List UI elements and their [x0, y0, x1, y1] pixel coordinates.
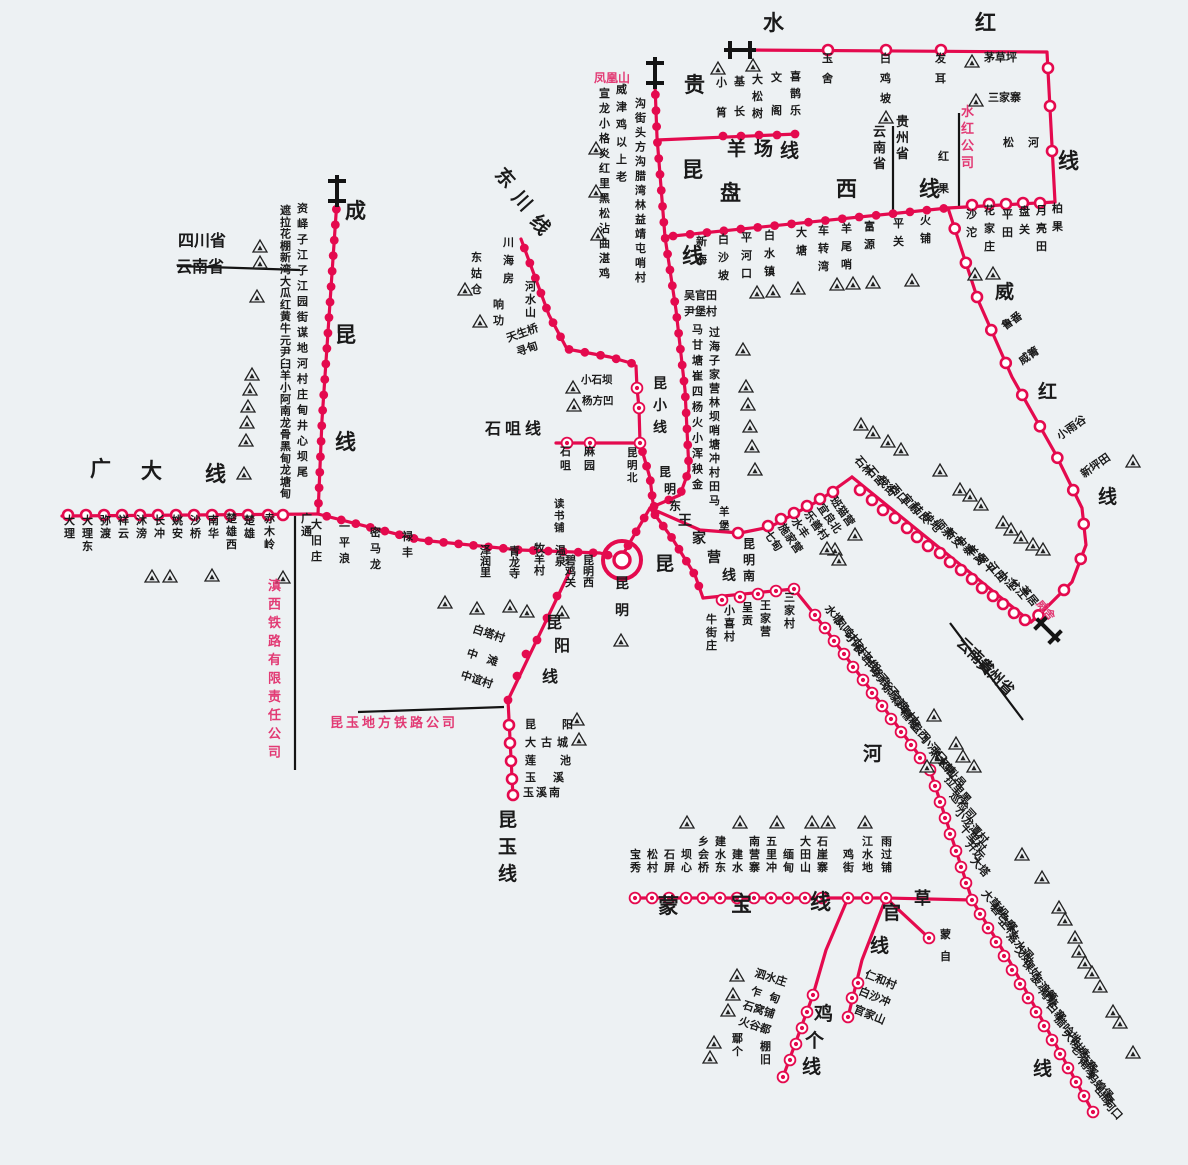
station-dot-core	[939, 204, 948, 213]
map-label-char: 丰	[402, 545, 413, 559]
station-dot-core	[950, 224, 960, 234]
map-label-char: 咀	[560, 459, 571, 472]
station-dot-core	[544, 547, 553, 556]
station-dot-core	[454, 539, 463, 548]
station-dot	[733, 528, 743, 538]
map-label-char: 宝	[630, 847, 641, 861]
map-label-char: 姑	[471, 266, 482, 280]
station-dot	[967, 574, 977, 584]
station-dot	[1063, 1063, 1074, 1074]
map-label-char: 街	[842, 860, 854, 874]
station-dot-core	[677, 487, 686, 496]
map-label-char: 宣	[599, 86, 610, 100]
station-dot-core	[773, 131, 782, 140]
map-label-char: 南	[743, 568, 755, 583]
map-label-char: 鹊	[790, 86, 801, 100]
map-label-char: 红	[961, 121, 974, 137]
map-label-char: 坡	[880, 91, 892, 105]
map-label-char: 雄	[243, 526, 255, 540]
map-label-char: 村	[709, 465, 720, 479]
station-dot	[896, 727, 907, 738]
map-label-char: 大	[82, 513, 93, 527]
station-dot-core	[861, 678, 865, 682]
map-label: 线	[542, 667, 558, 686]
map-label-char: 哨	[841, 257, 852, 271]
station-dot-core	[553, 592, 562, 601]
station-dot-core	[329, 251, 338, 260]
station-dot	[656, 170, 665, 179]
map-label-char: 新	[696, 234, 707, 248]
map-label: 个	[804, 1030, 825, 1052]
map-label-char: 峄	[297, 218, 309, 231]
map-label-char: 石	[559, 445, 571, 458]
station-dot-core	[788, 1058, 792, 1062]
map-label: 石咀线	[484, 419, 545, 438]
station-dot-core	[1074, 1080, 1078, 1084]
station-dot-core	[781, 1075, 785, 1079]
map-label: 羊尾哨	[840, 221, 852, 271]
station-dot-core	[791, 130, 800, 139]
station-dot-core	[890, 513, 900, 523]
station-dot-core	[918, 756, 922, 760]
station-dot-core	[684, 896, 688, 900]
station-dot-core	[878, 505, 888, 515]
station-dot-core	[580, 348, 589, 357]
map-label-char: 里	[766, 848, 777, 861]
map-label: 昆	[655, 553, 674, 575]
map-label: 读书铺	[554, 497, 565, 534]
station-dot	[991, 937, 1002, 948]
station-dot-core	[1001, 358, 1011, 368]
map-label-char: 理	[82, 527, 93, 540]
station-dot-core	[832, 639, 836, 643]
map-label-char: 威	[616, 82, 627, 96]
map-label-char: 司	[268, 746, 281, 761]
station-dot	[1047, 1035, 1058, 1046]
station-dot-core	[672, 313, 681, 322]
station-dot	[666, 265, 675, 274]
station-dot-core	[855, 213, 864, 222]
station-dot-core	[328, 267, 337, 276]
station-dot-core	[513, 672, 522, 681]
station-dot	[890, 513, 900, 523]
map-label-char: 林	[635, 198, 646, 212]
map-label-char: 湾	[818, 259, 829, 273]
map-label-char: 靖	[635, 227, 646, 241]
station-dot	[565, 345, 574, 354]
station-dot-core	[556, 332, 565, 341]
map-label: 莲池	[525, 753, 595, 767]
map-label: 昆	[682, 158, 703, 182]
map-label-char: 津	[616, 100, 627, 114]
station-dot-core	[689, 569, 698, 578]
station-dot	[867, 688, 878, 699]
map-label-char: 大	[800, 834, 811, 848]
station-dot	[612, 354, 621, 363]
station-dot	[278, 510, 288, 520]
station-dot-core	[823, 626, 827, 630]
map-label-char: 东	[669, 498, 681, 513]
map-label-char: 村	[635, 270, 646, 284]
station-dot	[672, 313, 681, 322]
map-label: 线	[780, 139, 799, 162]
station-dot	[689, 569, 698, 578]
map-label-char: 哨	[635, 256, 646, 270]
map-label-char: 岭	[264, 537, 275, 551]
station-dot	[675, 545, 684, 554]
map-label: 牧羊村	[534, 541, 546, 577]
station-dot	[930, 781, 941, 792]
map-label-char: 海	[503, 253, 514, 267]
station-dot-core	[948, 832, 952, 836]
map-label-char: 华	[208, 526, 219, 540]
station-dot-core	[1076, 554, 1086, 564]
map-label-char: 沙	[966, 208, 977, 221]
station-dot-core	[954, 849, 958, 853]
map-label-char: 坝	[297, 449, 308, 463]
map-label: 石屏	[663, 848, 675, 874]
station-dot-core	[315, 483, 324, 492]
map-label-char: 一	[339, 520, 350, 533]
map-label-char: 西	[268, 598, 281, 613]
station-dot	[520, 244, 529, 253]
station-dot-core	[805, 1010, 809, 1014]
station-dot	[820, 623, 831, 634]
map-label-char: 小	[691, 431, 703, 445]
station-dot	[499, 544, 508, 553]
station-dot-core	[637, 406, 641, 410]
map-label-char: 五	[766, 835, 777, 848]
station-dot	[972, 292, 982, 302]
map-label-char: 建	[732, 847, 744, 861]
map-label: 线	[722, 567, 736, 584]
map-label-char: 桥	[190, 526, 202, 540]
map-label-char: 喜	[790, 69, 801, 83]
map-label-char: 线	[498, 862, 517, 885]
station-dot-core	[956, 565, 966, 575]
station-dot-core	[867, 495, 877, 505]
map-label-char: 营	[760, 624, 771, 638]
map-label: 沟街头方沟腊湾林益靖屯哨村	[634, 96, 646, 284]
map-label: 赤木岭	[263, 511, 276, 551]
station-dot	[945, 557, 955, 567]
map-label-char: 沙	[190, 514, 201, 527]
station-dot	[632, 383, 643, 394]
station-dot	[1020, 615, 1030, 625]
map-label: 线	[802, 1055, 821, 1078]
map-label-char: 东	[715, 860, 726, 874]
station-dot-core	[682, 408, 691, 417]
station-dot	[525, 259, 534, 268]
map-label-char: 田	[800, 848, 811, 861]
station-dot-core	[326, 298, 335, 307]
map-label-char: 过	[709, 325, 720, 339]
station-dot	[682, 557, 691, 566]
map-label-char: 庄	[706, 638, 717, 652]
station-dot-core	[800, 1026, 804, 1030]
station-dot	[322, 512, 331, 521]
station-dot	[320, 375, 329, 384]
station-dot-core	[959, 865, 963, 869]
station-dot-core	[651, 510, 660, 519]
station-dot-core	[330, 236, 339, 245]
station-dot	[753, 589, 764, 600]
station-dot-core	[846, 896, 850, 900]
map-label-char: 铁	[267, 615, 281, 631]
station-dot-core	[998, 599, 1008, 609]
station-dot-core	[674, 329, 683, 338]
station-dot	[508, 790, 518, 800]
map-label-char: 蒙	[940, 927, 951, 941]
map-label: 昆玉地方铁路公司	[330, 715, 458, 731]
map-label: 四川省	[178, 231, 226, 250]
map-label-char: 沐	[136, 513, 148, 527]
map-label-char: 尾	[840, 240, 852, 253]
station-dot	[316, 452, 325, 461]
station-dot-core	[902, 523, 912, 533]
station-dot	[632, 527, 641, 536]
map-label-char: 白	[880, 51, 891, 65]
station-dot-core	[659, 218, 668, 227]
map-label-char: 村	[724, 629, 735, 643]
map-label-char: 上	[616, 152, 627, 166]
station-dot	[654, 154, 663, 163]
station-dot-core	[1066, 1066, 1070, 1070]
station-dot	[504, 720, 514, 730]
station-dot-core	[322, 512, 331, 521]
station-dot	[1088, 1107, 1099, 1118]
station-dot	[773, 131, 782, 140]
map-label-char: 基	[733, 74, 746, 88]
station-dot-core	[1018, 982, 1022, 986]
map-label-char: 理	[64, 527, 75, 540]
station-dot	[753, 223, 762, 232]
map-label-char: 白	[718, 232, 729, 246]
station-dot	[924, 933, 935, 944]
station-dot	[940, 813, 951, 824]
map-label-char: 玉	[822, 52, 833, 65]
station-dot-core	[439, 538, 448, 547]
map-label-char: 祥	[118, 513, 129, 527]
map-label-char: 塘	[692, 353, 703, 367]
map-label-char: 火	[692, 416, 704, 429]
station-dot	[906, 207, 915, 216]
station-dot-core	[933, 784, 937, 788]
map-label-char: 书	[554, 509, 565, 522]
station-dot	[935, 548, 945, 558]
station-dot-core	[648, 491, 657, 500]
map-label-char: 鄢	[732, 1032, 743, 1045]
station-dot-core	[1043, 63, 1053, 73]
map-label-char: 马	[692, 323, 703, 336]
station-dot-core	[318, 406, 327, 415]
map-label-char: 营	[749, 847, 760, 861]
station-dot-core	[964, 881, 968, 885]
map-label: 盘	[720, 181, 741, 205]
map-label-char: 昆	[653, 376, 667, 392]
station-dot	[961, 878, 972, 889]
station-dot	[694, 582, 703, 591]
map-label-char: 文	[771, 70, 783, 84]
station-dot-core	[675, 545, 684, 554]
station-dot-core	[994, 940, 998, 944]
map-label: 王	[678, 513, 692, 529]
map-label-char: 州	[895, 131, 909, 146]
station-dot-core	[650, 502, 659, 511]
map-label: 三家寨	[988, 90, 1021, 104]
map-label: 雨过铺	[881, 835, 892, 874]
map-label: 青龙寺	[508, 544, 520, 580]
map-label-char: 弥	[100, 513, 111, 527]
map-label: 平河口	[741, 231, 752, 280]
map-label-char: 密	[370, 525, 381, 539]
station-dot	[380, 527, 389, 536]
map-label-char: 禄	[401, 529, 414, 543]
station-dot-core	[663, 250, 672, 259]
station-dot-core	[525, 259, 534, 268]
map-label-char: 旧	[760, 1053, 771, 1066]
map-label-char: 龙	[369, 557, 381, 571]
map-label-char: 江	[862, 834, 873, 848]
station-dot	[778, 1072, 789, 1083]
station-dot	[923, 541, 933, 551]
map-label-char: 红	[599, 161, 610, 175]
station-dot-core	[718, 896, 722, 900]
map-label-char: 东	[82, 539, 93, 553]
railway-map: 水红线盘西线贵昆线成昆线广大线羊场线东川线石咀线昆小线昆阳线昆玉线蒙宝线官线鸡个…	[0, 0, 1188, 1165]
map-label: 云南省	[176, 257, 224, 276]
station-dot	[808, 990, 819, 1001]
station-dot	[1059, 585, 1069, 595]
station-dot	[677, 487, 686, 496]
station-dot	[988, 591, 998, 601]
station-dot-core	[1020, 615, 1030, 625]
station-dot	[872, 211, 881, 220]
station-dot	[951, 846, 962, 857]
map-label: 过海子家营林坝哨塘冲村田马	[709, 325, 721, 507]
station-dot	[956, 565, 966, 575]
map-label-char: 缅	[783, 847, 794, 861]
map-label-char: 龙	[598, 101, 610, 115]
map-label-char: 大	[752, 72, 763, 86]
map-label-char: 昆	[498, 809, 517, 831]
map-label: 小石坝	[580, 373, 613, 386]
map-label: 鸡	[813, 1002, 833, 1025]
map-label: 鄢个	[731, 1032, 744, 1058]
station-dot	[847, 993, 858, 1004]
station-dot	[652, 122, 661, 131]
map-label: 坝心	[681, 847, 692, 874]
map-label: 线	[1098, 485, 1117, 508]
map-label-char: 长	[154, 513, 166, 527]
station-dot-core	[1068, 485, 1078, 495]
station-dot	[556, 332, 565, 341]
map-label-char: 山	[800, 860, 811, 874]
map-label: 王家营	[760, 599, 772, 638]
station-dot-core	[978, 912, 982, 916]
station-dot	[785, 1055, 796, 1066]
map-label-char: 石	[663, 848, 675, 861]
map-label-char: 塘	[796, 243, 807, 257]
station-dot	[537, 289, 546, 298]
map-label: 东姑仓	[470, 250, 483, 296]
station-dot-core	[865, 896, 869, 900]
station-dot-core	[635, 386, 639, 390]
station-dot-core	[565, 345, 574, 354]
station-dot	[325, 313, 334, 322]
map-label-char: 格	[599, 131, 611, 145]
map-label: 昆阳	[525, 717, 599, 731]
station-dot-core	[842, 652, 846, 656]
station-dot-core	[1058, 1052, 1062, 1056]
map-label-char: 炎	[599, 147, 610, 160]
map-label-char: 责	[268, 689, 281, 705]
map-label: 昆	[335, 323, 356, 347]
station-dot-core	[774, 589, 778, 593]
station-dot	[668, 281, 677, 290]
station-dot-core	[324, 329, 333, 338]
station-dot-core	[351, 519, 360, 528]
station-dot	[314, 499, 323, 508]
map-label-char: 堡	[719, 519, 730, 532]
map-label-char: 海	[696, 252, 707, 266]
map-label-char: 子	[709, 354, 720, 367]
map-label-char: 地	[297, 341, 308, 355]
map-label-char: 马	[370, 542, 381, 555]
station-dot	[327, 282, 336, 291]
map-label: 威	[995, 280, 1014, 303]
station-dot-core	[1091, 1110, 1095, 1114]
station-dot	[843, 893, 854, 904]
station-dot-core	[424, 536, 433, 545]
station-dot	[766, 893, 777, 904]
station-dot-core	[646, 476, 655, 485]
station-dot-core	[1042, 1024, 1046, 1028]
map-label: 遮拉花棚新湾大瓜红黄牛元尹臼羊小阿南龙骨黑甸龙塘甸	[279, 203, 291, 500]
map-label-char: 湛	[599, 251, 610, 265]
station-dot	[945, 829, 956, 840]
station-dot-core	[650, 896, 654, 900]
map-label-char: 建	[715, 834, 727, 848]
map-label-char: 果	[937, 182, 949, 195]
station-dot	[1031, 1007, 1042, 1018]
map-label: 一平浪	[339, 520, 350, 565]
station-dot-core	[850, 996, 854, 1000]
map-label: 家	[692, 530, 707, 547]
map-label: 长冲	[154, 513, 166, 540]
map-label-char: 黑	[599, 192, 610, 205]
station-dot-core	[682, 472, 691, 481]
station-dot-core	[794, 1042, 798, 1046]
station-dot-core	[889, 717, 893, 721]
station-dot	[329, 251, 338, 260]
map-label: 大古城	[525, 735, 573, 749]
station-dot	[999, 951, 1010, 962]
map-label: 尹堡村	[684, 304, 717, 318]
station-dot-core	[469, 541, 478, 550]
station-dot-core	[533, 636, 542, 645]
map-label-char: 四	[692, 385, 703, 398]
station-dot	[507, 774, 517, 784]
map-label: 玉溪南	[523, 785, 562, 799]
station-dot	[783, 893, 794, 904]
map-label-char: 呈	[742, 601, 753, 614]
map-label: 蒙	[658, 894, 679, 918]
station-dot-core	[1045, 101, 1055, 111]
map-label-char: 尾	[296, 466, 308, 479]
map-label-char: 任	[267, 708, 281, 724]
station-dot-core	[504, 720, 514, 730]
